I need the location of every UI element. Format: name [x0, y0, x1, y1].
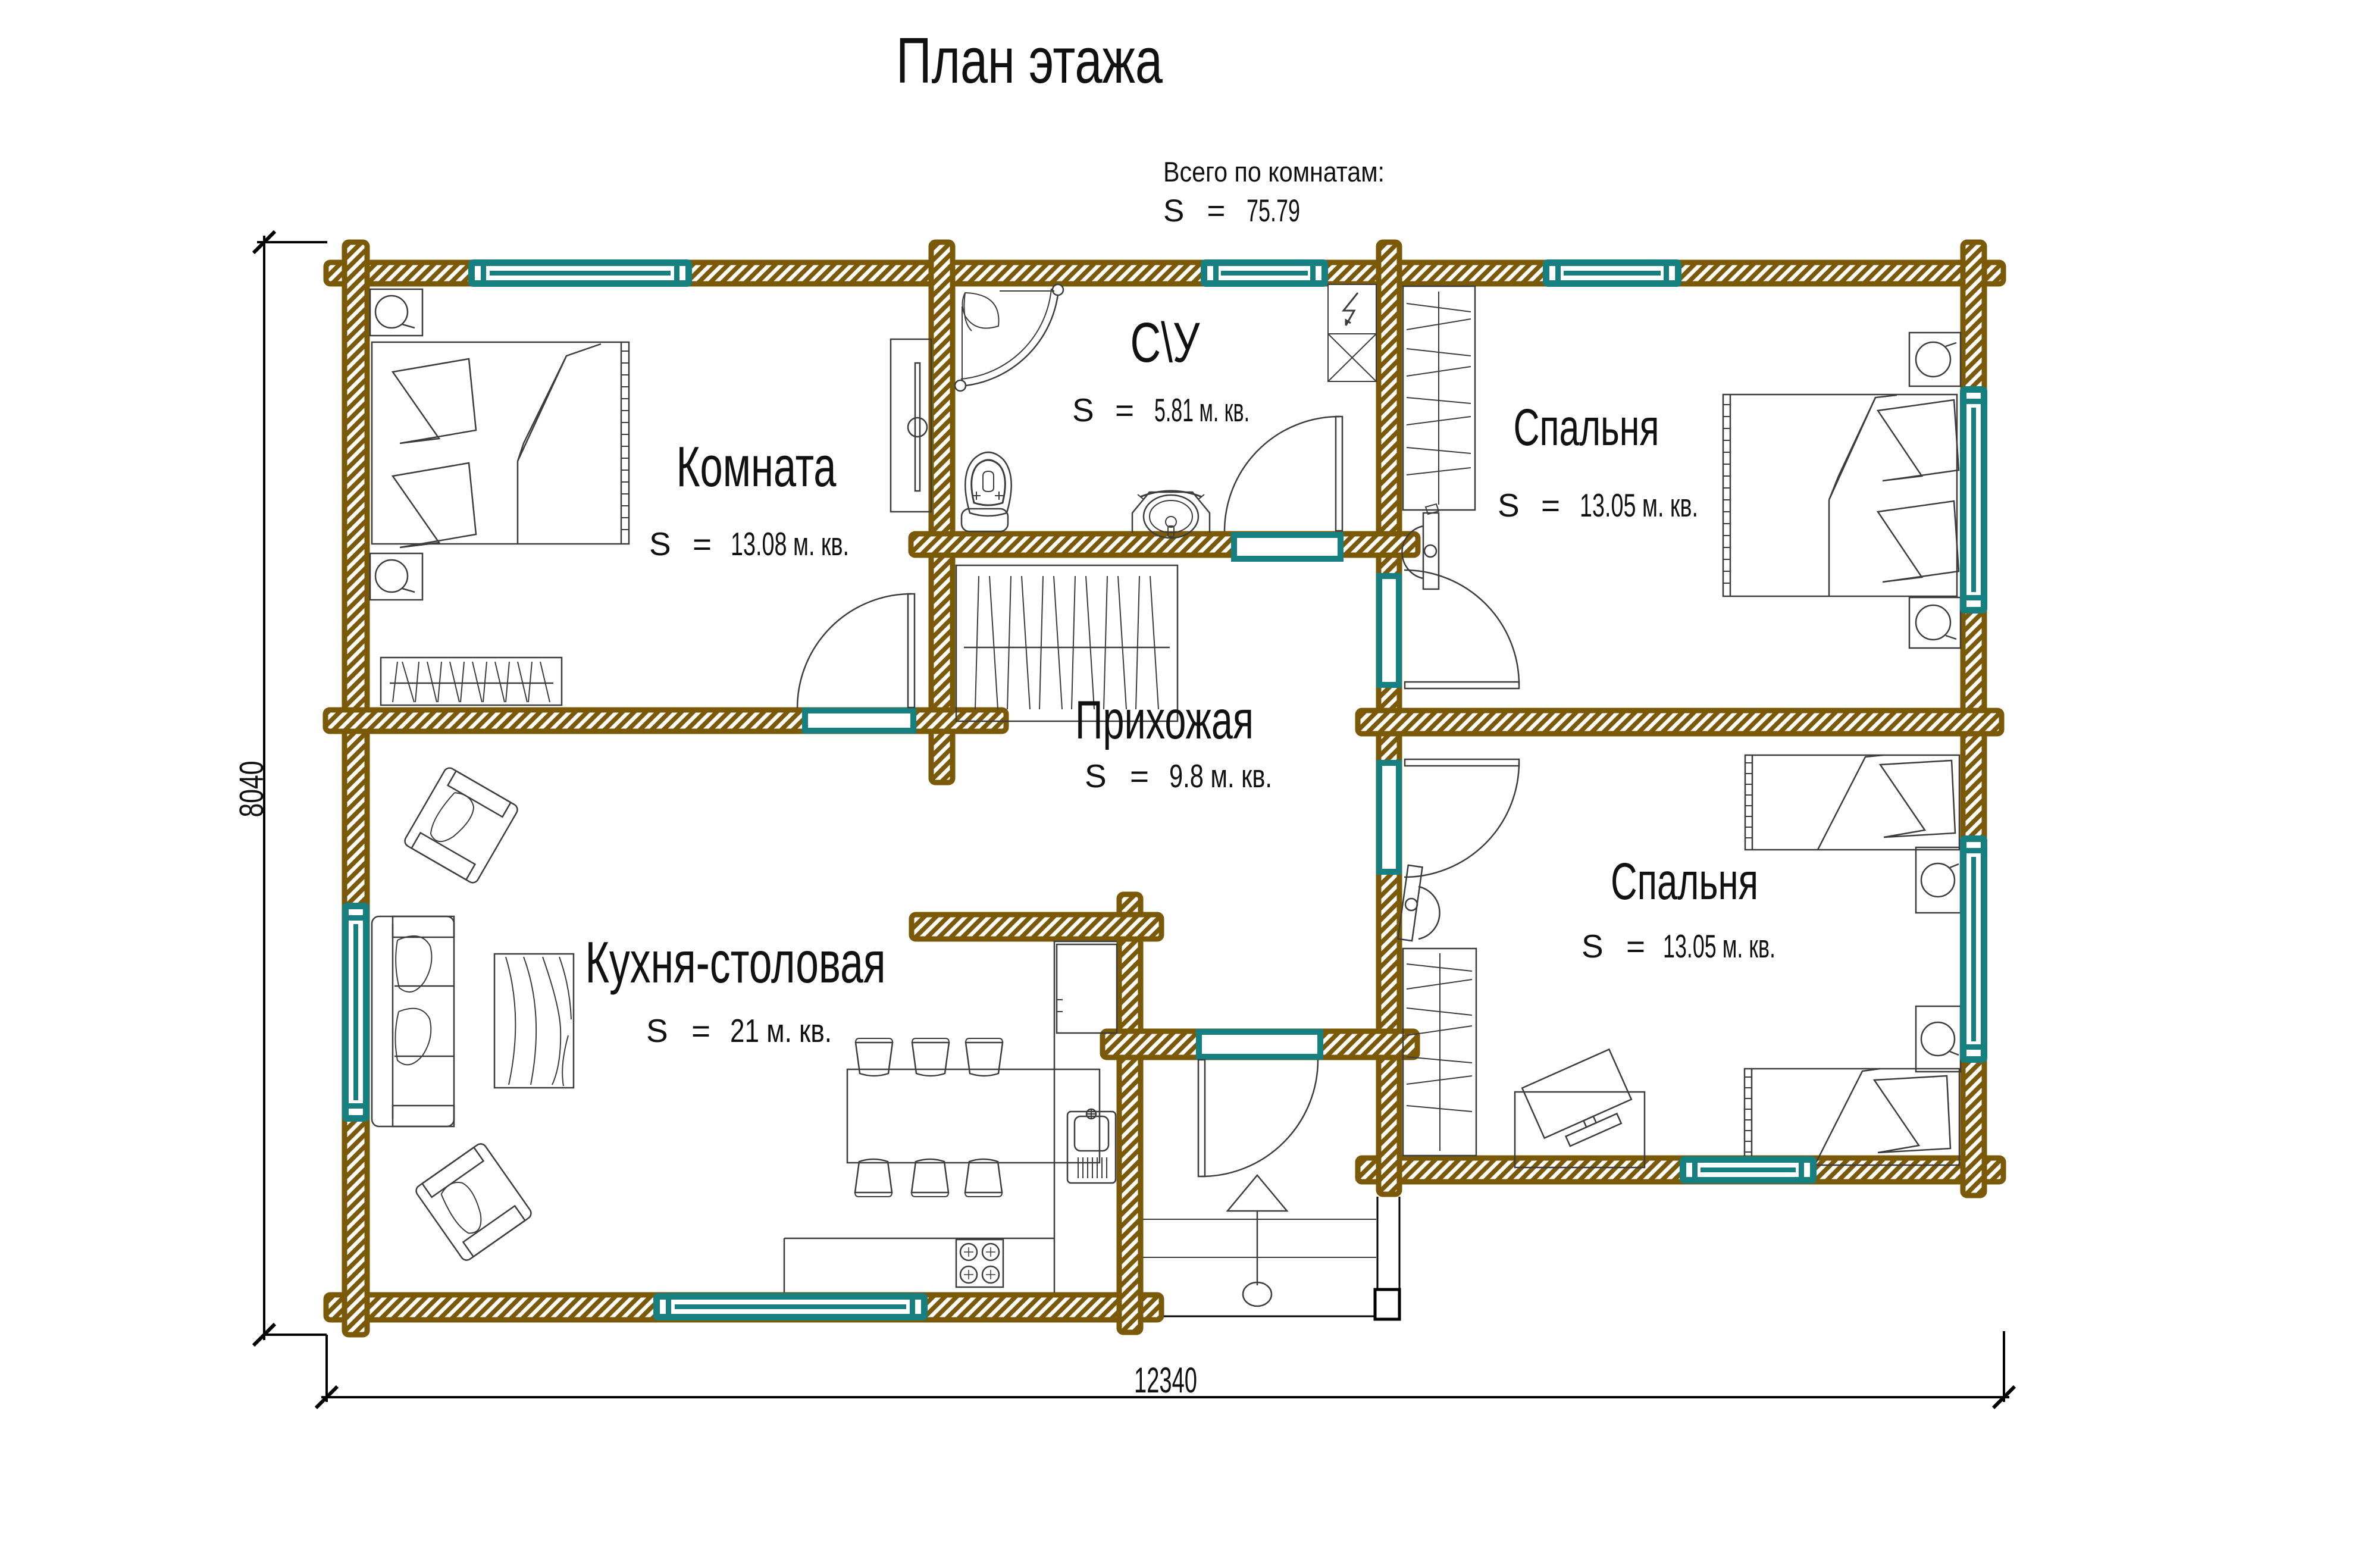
svg-text:Всего по комнатам:: Всего по комнатам:: [1163, 156, 1385, 187]
svg-text:=: =: [1626, 928, 1645, 965]
svg-text:=: =: [1207, 193, 1226, 229]
svg-text:S: S: [1582, 928, 1604, 965]
svg-text:Прихожая: Прихожая: [1075, 690, 1254, 750]
svg-text:8040: 8040: [233, 761, 271, 818]
svg-text:=: =: [1130, 758, 1149, 794]
svg-text:S: S: [1163, 193, 1184, 229]
svg-text:=: =: [1541, 487, 1560, 524]
svg-text:5.81 м. кв.: 5.81 м. кв.: [1154, 392, 1249, 428]
svg-text:S: S: [646, 1012, 668, 1049]
svg-text:Спальня: Спальня: [1611, 853, 1758, 910]
svg-text:75.79: 75.79: [1247, 193, 1300, 229]
svg-text:13.05 м. кв.: 13.05 м. кв.: [1663, 928, 1775, 965]
svg-text:Кухня-столовая: Кухня-столовая: [585, 929, 886, 995]
svg-text:С\У: С\У: [1130, 311, 1200, 374]
svg-text:21 м. кв.: 21 м. кв.: [730, 1012, 832, 1049]
svg-text:=: =: [1115, 392, 1134, 428]
svg-text:=: =: [691, 1012, 710, 1049]
svg-text:План этажа: План этажа: [896, 24, 1163, 97]
svg-text:Комната: Комната: [677, 435, 837, 499]
svg-text:13.05 м. кв.: 13.05 м. кв.: [1580, 487, 1698, 524]
svg-text:12340: 12340: [1134, 1360, 1197, 1400]
svg-text:9.8 м. кв.: 9.8 м. кв.: [1169, 758, 1272, 794]
svg-text:S: S: [1072, 392, 1094, 428]
svg-text:S: S: [1085, 758, 1107, 794]
svg-text:S: S: [1498, 487, 1520, 524]
svg-text:S: S: [649, 525, 671, 562]
svg-text:13.08 м. кв.: 13.08 м. кв.: [731, 525, 849, 562]
svg-text:Спальня: Спальня: [1514, 399, 1659, 456]
svg-text:=: =: [693, 525, 712, 562]
